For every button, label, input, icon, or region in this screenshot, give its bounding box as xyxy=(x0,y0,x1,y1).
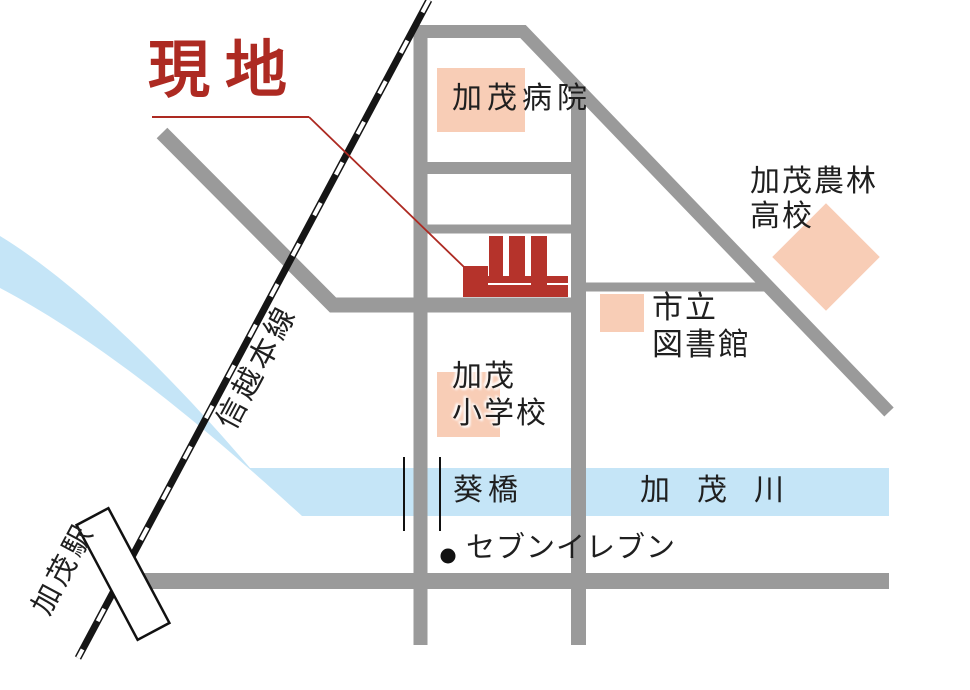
bridge-label: 葵橋 xyxy=(453,474,523,509)
site-label: 現地 xyxy=(148,34,302,106)
elementary-school-label-line1: 加茂 xyxy=(452,358,548,395)
elementary-school-label-line2: 小学校 xyxy=(452,395,548,432)
library-label-line2: 図書館 xyxy=(652,327,751,364)
highschool-label-line2: 高校 xyxy=(750,199,878,234)
location-map: 現地 加茂病院 加茂農林 高校 市立 図書館 加茂 小学校 葵橋 加茂川 セブン… xyxy=(0,0,970,690)
highschool-label-line1: 加茂農林 xyxy=(750,164,878,199)
elementary-school-label: 加茂 小学校 xyxy=(452,358,548,432)
library-label: 市立 図書館 xyxy=(652,290,751,364)
library-block xyxy=(600,294,644,332)
site-leader-line xyxy=(309,117,464,267)
highschool-label: 加茂農林 高校 xyxy=(750,164,878,234)
site-building xyxy=(463,236,568,297)
hospital-label: 加茂病院 xyxy=(452,82,592,117)
river-label: 加茂川 xyxy=(640,474,811,509)
seven-eleven-label: セブンイレブン xyxy=(466,531,676,565)
seven-eleven-dot xyxy=(441,549,456,564)
library-label-line1: 市立 xyxy=(652,290,751,327)
